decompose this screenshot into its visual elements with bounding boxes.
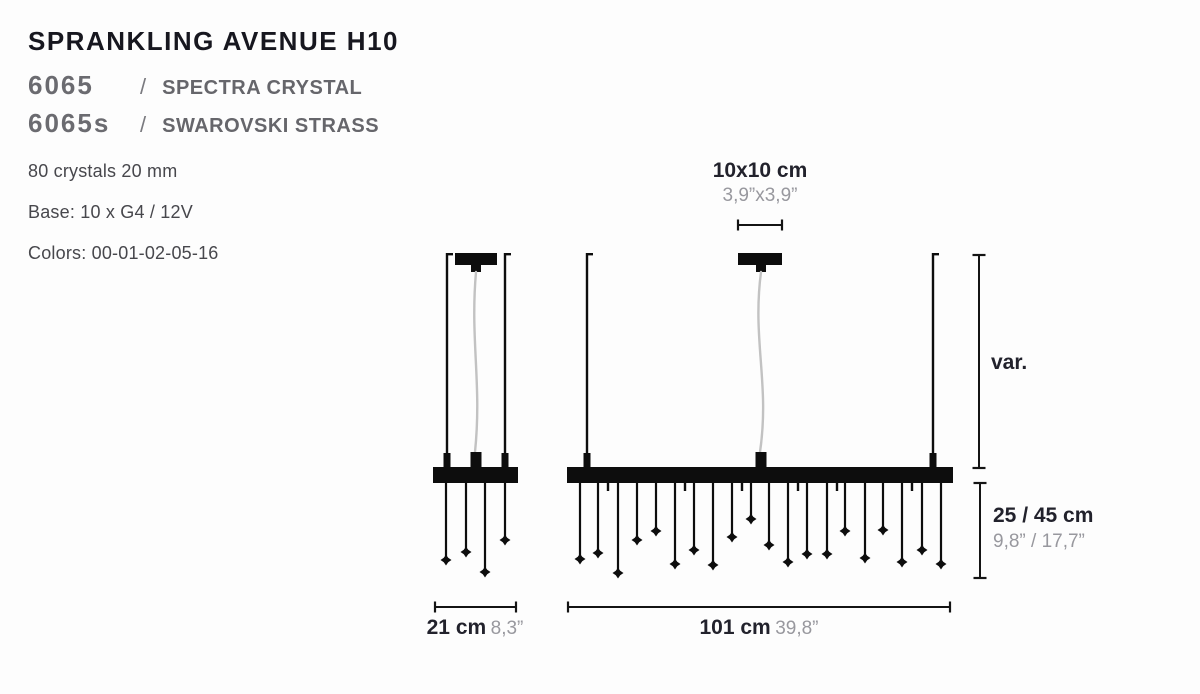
crystal <box>500 535 511 546</box>
large-width-dimension-label: 101 cm 39,8” <box>659 616 859 640</box>
suspension-var: var. <box>991 351 1027 374</box>
canopy-imperial: 3,9”x3,9” <box>660 183 860 208</box>
drop-dimension-label: 25 / 45 cm 9,8” / 17,7” <box>993 503 1093 555</box>
canopy-metric: 10x10 cm <box>660 158 860 183</box>
crystal <box>593 548 604 559</box>
crystal <box>651 526 662 537</box>
drop-metric: 25 / 45 cm <box>993 503 1093 529</box>
crystal <box>860 553 871 564</box>
small-fixture <box>433 253 518 578</box>
large-width-metric: 101 cm <box>700 616 771 639</box>
dimension-diagram <box>0 0 1200 694</box>
crystal <box>822 549 833 560</box>
crystal <box>727 532 738 543</box>
crystal <box>878 525 889 536</box>
crystal <box>689 545 700 556</box>
datasheet-page: SPRANKLING AVENUE H10 6065 / SPECTRA CRY… <box>0 0 1200 694</box>
crystal <box>461 547 472 558</box>
small-width-metric: 21 cm <box>427 616 487 639</box>
crystal <box>897 557 908 568</box>
crystal <box>441 555 452 566</box>
drop-imperial: 9,8” / 17,7” <box>993 529 1093 555</box>
crystal <box>613 568 624 579</box>
crystal <box>917 545 928 556</box>
crystal <box>575 554 586 565</box>
large-width-imperial: 39,8” <box>775 618 818 639</box>
crystal <box>708 560 719 571</box>
suspension-dimension-label: var. <box>991 351 1027 375</box>
crystal <box>632 535 643 546</box>
dimension-lines <box>435 220 987 613</box>
crystal <box>840 526 851 537</box>
crystal <box>746 514 757 525</box>
crystal <box>764 540 775 551</box>
small-width-imperial: 8,3” <box>491 618 524 639</box>
crystal <box>783 557 794 568</box>
crystal <box>802 549 813 560</box>
large-fixture <box>567 253 953 579</box>
small-width-dimension-label: 21 cm 8,3” <box>375 616 575 640</box>
canopy-dimension-label: 10x10 cm 3,9”x3,9” <box>660 158 860 208</box>
crystal <box>936 559 947 570</box>
crystal <box>670 559 681 570</box>
crystal <box>480 567 491 578</box>
